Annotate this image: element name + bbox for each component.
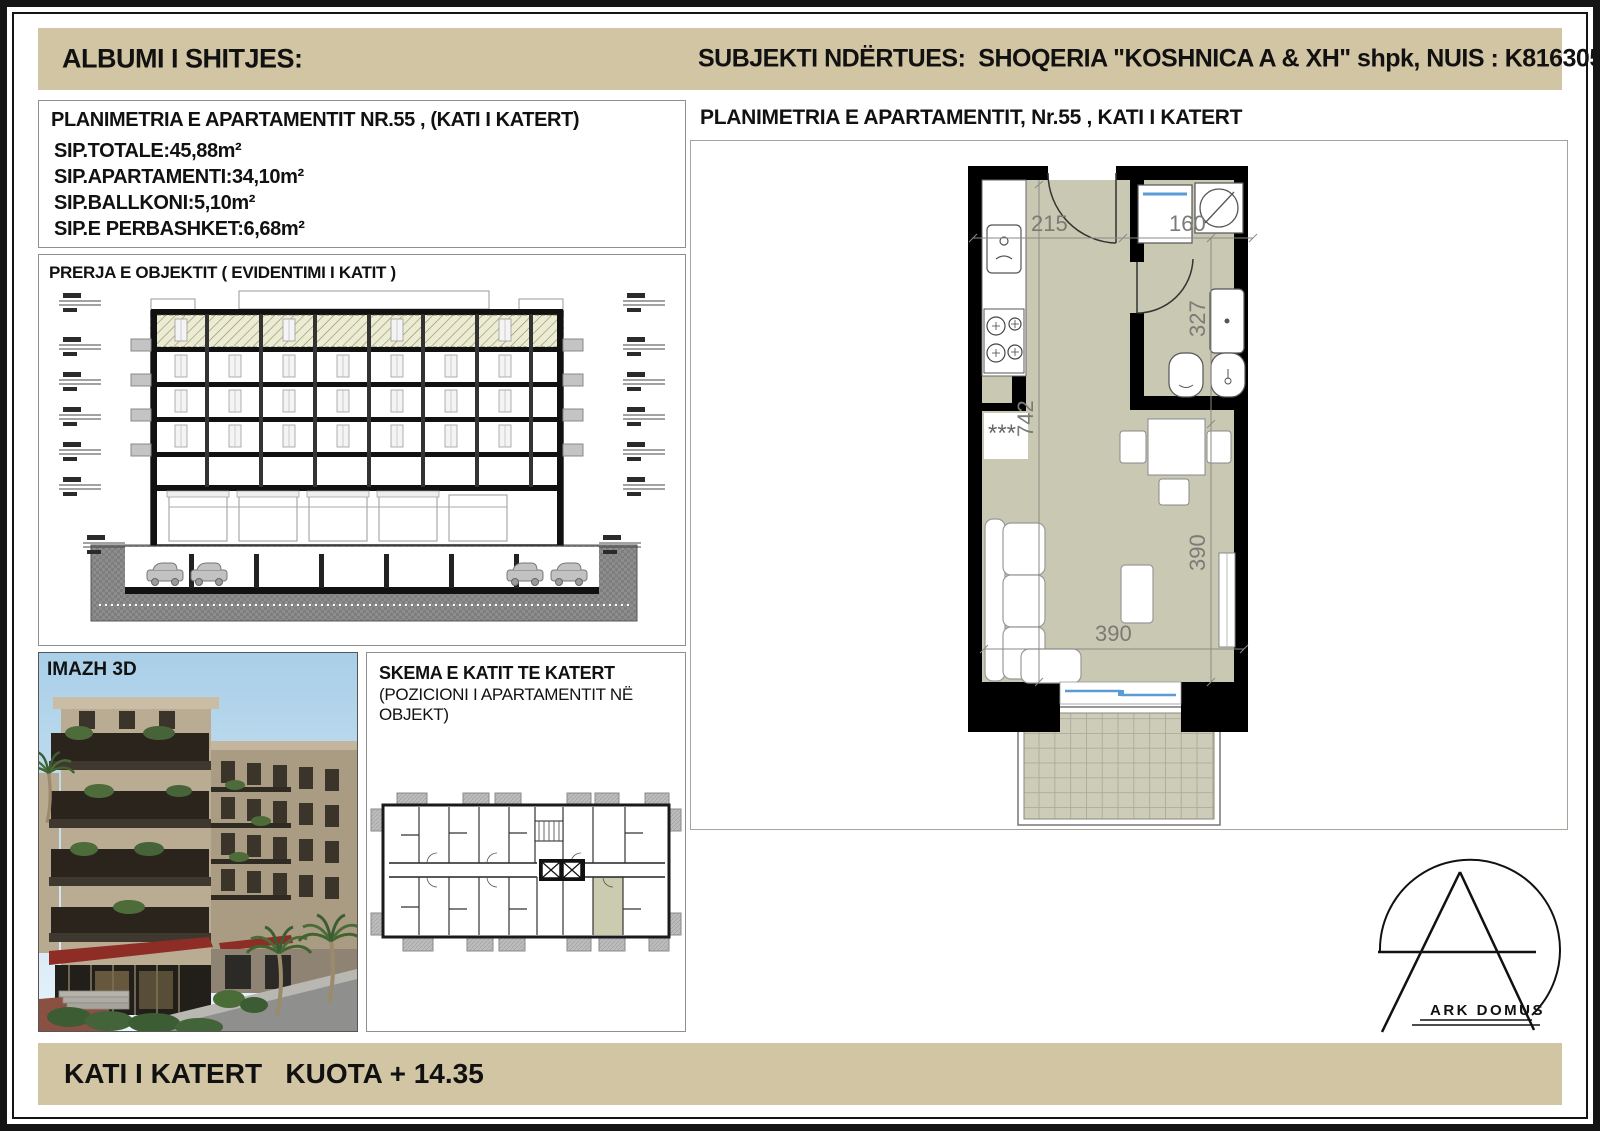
radiator-mark: *** — [988, 420, 1016, 447]
dining-table — [1148, 419, 1205, 475]
sink — [987, 225, 1021, 273]
building-section-drawing — [39, 283, 685, 643]
apartment-plan-drawing: *** 215 160 327 — [691, 141, 1567, 829]
floor-schema-panel: SKEMA E KATIT TE KATERT (POZICIONI I APA… — [366, 652, 686, 1032]
logo-circle-arc — [1380, 860, 1560, 1015]
sale-album-sheet: ALBUMI I SHITJES: SUBJEKTI NDËRTUES: SHO… — [0, 0, 1600, 1131]
toilet — [1169, 353, 1203, 397]
front-building-tower — [49, 697, 219, 965]
elevation-markers-right — [599, 293, 665, 554]
coffee-table — [1121, 565, 1153, 623]
apartment-info-panel: PLANIMETRIA E APARTAMENTIT NR.55 , (KATI… — [38, 100, 686, 248]
album-title: ALBUMI I SHITJES: — [62, 44, 303, 75]
dim-bath-depth: 327 — [1185, 300, 1210, 337]
render-3d-label: IMAZH 3D — [47, 659, 137, 681]
ground-floor-storefronts — [167, 491, 507, 541]
wall-niche — [982, 375, 1012, 403]
apartment-plan-title: PLANIMETRIA E APARTAMENTIT NR.55 , (KATI… — [51, 109, 673, 132]
chair — [1159, 479, 1189, 505]
header-band: ALBUMI I SHITJES: SUBJEKTI NDËRTUES: SHO… — [38, 28, 1562, 90]
area-balcony: SIP.BALLKONI:5,10m² — [51, 190, 673, 216]
dim-apartment-depth: 742 — [1013, 400, 1038, 437]
balcony-window — [1060, 682, 1181, 704]
apartment-plan-panel: *** 215 160 327 — [690, 140, 1568, 830]
ark-domus-logo: ARK DOMUS — [1372, 852, 1572, 1037]
building-section-panel: PRERJA E OBJEKTIT ( EVIDENTIMI I KATIT ) — [38, 254, 686, 646]
area-total: SIP.TOTALE:45,88m² — [51, 138, 673, 164]
schema-subtitle: (POZICIONI I APARTAMENTIT NË OBJEKT) — [367, 684, 685, 725]
floor-elevation-label: KATI I KATERT KUOTA + 14.35 — [64, 1058, 484, 1090]
section-title: PRERJA E OBJEKTIT ( EVIDENTIMI I KATIT ) — [39, 255, 685, 283]
roof-parapet — [239, 291, 489, 309]
plan-title: PLANIMETRIA E APARTAMENTIT, Nr.55 , KATI… — [700, 106, 1242, 130]
render-3d-panel: IMAZH 3D — [38, 652, 358, 1032]
floor-schema-drawing — [367, 725, 685, 1045]
schema-title: SKEMA E KATIT TE KATERT — [367, 653, 685, 684]
dim-hall-width: 215 — [1031, 211, 1068, 236]
chair — [1120, 431, 1146, 463]
dim-room-depth: 390 — [1185, 534, 1210, 571]
builder-subject-title: SUBJEKTI NDËRTUES: SHOQERIA "KOSHNICA A … — [698, 45, 1600, 74]
area-common: SIP.E PERBASHKET:6,68m² — [51, 216, 673, 242]
logo: ARK DOMUS — [1372, 852, 1572, 1037]
schema-outer-walls — [383, 805, 669, 937]
kitchen-counter — [982, 180, 1026, 376]
elevation-markers-left — [59, 293, 125, 554]
logo-text: ARK DOMUS — [1430, 1002, 1545, 1019]
dim-room-width: 390 — [1095, 621, 1132, 646]
area-apartment: SIP.APARTAMENTI:34,10m² — [51, 164, 673, 190]
render-3d-image — [39, 653, 357, 1031]
footer-band: KATI I KATERT KUOTA + 14.35 — [38, 1043, 1562, 1105]
dim-bath-width: 160 — [1169, 211, 1206, 236]
